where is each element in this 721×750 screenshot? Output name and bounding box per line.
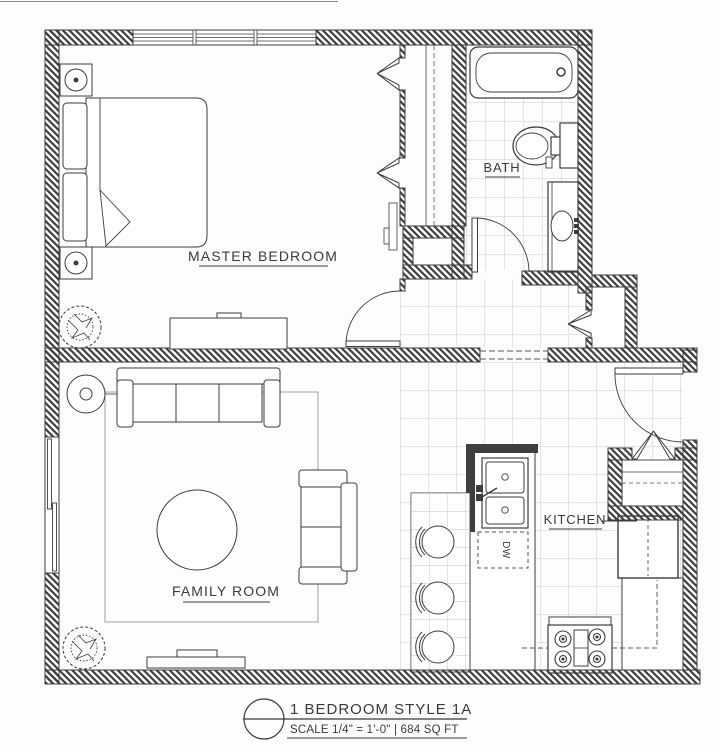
dishwasher-text: DW	[500, 541, 511, 559]
family-room-text: FAMILY ROOM	[172, 583, 280, 599]
sofa	[117, 368, 280, 427]
nightstand	[60, 64, 92, 96]
wall-segment	[578, 30, 592, 293]
kitchen-text: KITCHEN	[544, 512, 607, 527]
coat-closet-floor	[592, 287, 625, 348]
family-room-furniture	[67, 368, 357, 668]
wall-segment	[316, 30, 592, 45]
bathtub-drain	[557, 68, 565, 76]
floor-plan-drawing: MASTER BEDROOM BATH FAMILY ROOM KITCHEN …	[0, 0, 721, 750]
wall-segment	[683, 350, 697, 372]
bath-text: BATH	[484, 160, 521, 175]
wall-segment	[452, 226, 464, 279]
wall-segment	[45, 30, 59, 437]
wall-segment	[586, 338, 592, 348]
wall-segment	[400, 45, 405, 58]
title-block: 1 BEDROOM STYLE 1A SCALE 1/4" = 1'-0" | …	[243, 699, 472, 739]
east-counter	[622, 578, 683, 670]
furniture	[59, 64, 397, 669]
side-table-lamp	[67, 375, 117, 413]
toilet-tank	[560, 123, 578, 168]
wall-segment	[608, 506, 683, 520]
wall-segment	[548, 348, 697, 362]
family-room-label: FAMILY ROOM	[172, 583, 280, 602]
wall-segment	[625, 287, 637, 348]
wall-segment	[608, 460, 622, 506]
loveseat	[299, 470, 357, 584]
master-bedroom-label: MASTER BEDROOM	[188, 248, 338, 266]
plan-scale-text: SCALE 1/4" = 1'-0" | 684 SQ FT	[290, 724, 459, 736]
master-bedroom-text: MASTER BEDROOM	[188, 248, 338, 264]
family-room-window	[45, 437, 59, 573]
vanity-sink	[551, 211, 573, 241]
coffee-table	[157, 490, 237, 570]
refrigerator	[618, 516, 678, 578]
wall-segment	[45, 670, 700, 684]
potted-plant	[63, 627, 105, 669]
stove	[548, 617, 612, 673]
toilet-bowl-inner	[516, 133, 548, 159]
hall-tile-floor	[400, 279, 592, 348]
wall-segment	[45, 573, 59, 684]
counter-edge-top	[466, 444, 538, 453]
wall-segment	[45, 348, 480, 362]
wall-segment	[608, 448, 632, 460]
wall-segment	[403, 238, 413, 265]
master-bedroom-furniture	[60, 64, 397, 349]
bath-label: BATH	[484, 160, 521, 177]
wall-segment	[400, 188, 405, 226]
master-closet-bifold	[377, 158, 399, 188]
wall-segment	[522, 271, 578, 285]
wall-segment	[675, 448, 697, 460]
dresser	[170, 313, 287, 349]
master-bedroom-door	[346, 291, 400, 347]
plan-title-text: 1 BEDROOM STYLE 1A	[290, 701, 472, 718]
hall-kitchen-opening	[480, 351, 548, 359]
wall-shelf	[384, 203, 397, 250]
towel-bar	[546, 157, 552, 168]
bed	[63, 98, 207, 247]
wall-segment	[586, 287, 592, 310]
potted-plant	[59, 306, 101, 348]
wall-segment	[400, 90, 405, 158]
wall-segment	[592, 275, 637, 287]
nightstand	[60, 247, 92, 279]
wall-segment	[400, 279, 405, 291]
tv-console	[147, 650, 245, 668]
wall-segment	[452, 45, 466, 226]
master-closet-bifold	[377, 58, 399, 90]
floor-plan-page: MASTER BEDROOM BATH FAMILY ROOM KITCHEN …	[0, 0, 721, 750]
bedroom-window	[133, 30, 316, 45]
wall-segment	[683, 440, 697, 670]
